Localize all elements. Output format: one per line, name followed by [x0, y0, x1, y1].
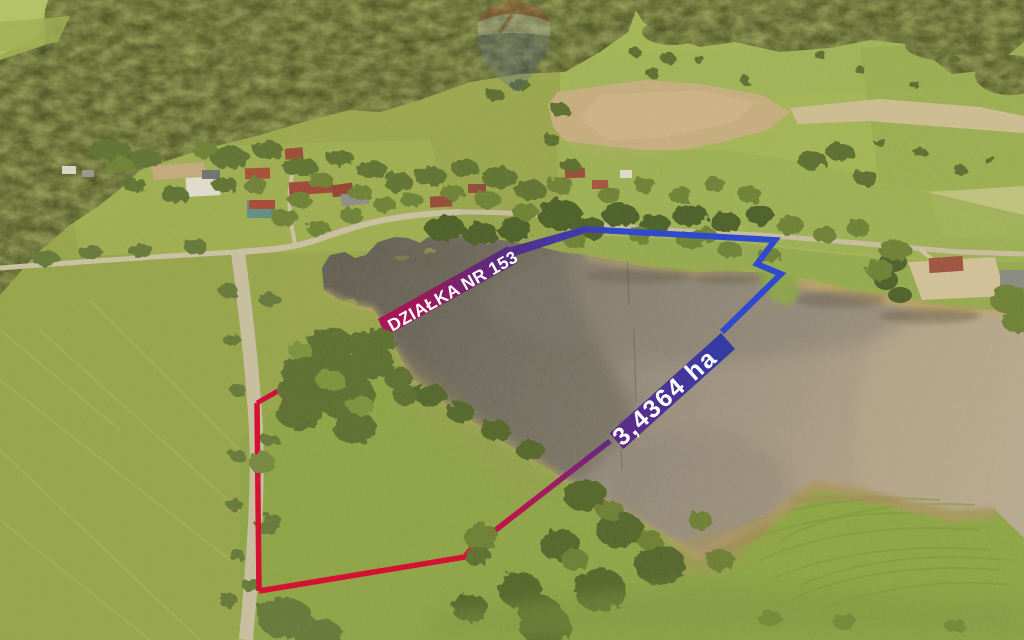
svg-text:RE: RE: [481, 23, 495, 34]
svg-text:MAX: MAX: [513, 23, 536, 34]
